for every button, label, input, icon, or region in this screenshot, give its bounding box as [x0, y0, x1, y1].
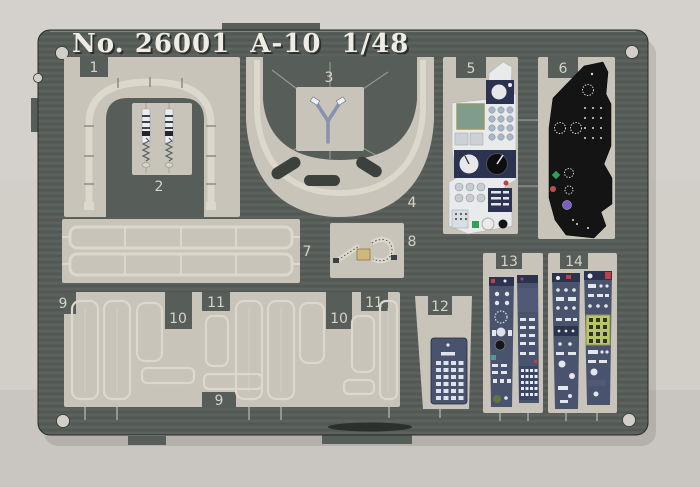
region-2-island [132, 103, 192, 175]
part-label-14: 14 [565, 254, 583, 270]
keypad-display [441, 352, 455, 356]
console-13-teal-key [491, 355, 496, 360]
part-label-4: 4 [408, 195, 417, 211]
panel-5-window-right [470, 133, 483, 145]
panel-5-switch-bars [491, 191, 509, 206]
panel-5-foot-dial [482, 218, 494, 230]
console-13-gauge [497, 328, 506, 337]
keypad-lamp [446, 343, 449, 346]
photo-of-pe-fret: No. 26001 A-10 1/48 No. 26001 A-10 1/48 [0, 0, 700, 487]
console-13-right-red-lamp [521, 278, 524, 281]
console-13-red-key [491, 279, 495, 283]
part-label-3: 3 [325, 70, 334, 86]
console-13-right-red-key [534, 360, 537, 363]
console-14-header-dial [556, 276, 560, 280]
part-label-11a: 11 [207, 295, 225, 311]
title-text: No. 26001 A-10 1/48 [72, 29, 409, 59]
part-label-9b: 9 [215, 393, 224, 409]
console-13-header-lamp [504, 280, 507, 283]
console-14-right-dial [588, 274, 593, 279]
fret-title: No. 26001 A-10 1/48 No. 26001 A-10 1/48 [72, 29, 411, 61]
panel-5-top-lamp [508, 83, 512, 87]
console-13-right-header [517, 275, 538, 283]
part-label-6: 6 [559, 61, 568, 77]
panel-5-foot-knob [499, 220, 508, 229]
console-14-left-red-key [566, 275, 571, 279]
slot-center [304, 175, 340, 186]
corner-hole-bottom-left [57, 415, 70, 428]
part-label-11b: 11 [365, 295, 383, 311]
part-label-13: 13 [500, 254, 518, 270]
part-label-2: 2 [155, 179, 164, 195]
corner-hole-bottom-right [623, 414, 636, 427]
part-label-9a: 9 [59, 296, 68, 312]
console-13-black-knob [495, 340, 505, 350]
bottom-slot [328, 423, 412, 432]
arch-foot-right [206, 202, 216, 210]
part-label-12: 12 [431, 299, 449, 315]
part-label-7: 7 [303, 244, 312, 260]
console-14-right-red-block [605, 272, 611, 279]
panel-5-window-left [455, 133, 468, 145]
part-label-5: 5 [467, 61, 476, 77]
panel-6-purple-knob [563, 201, 572, 210]
part-12-keypad-panel [431, 338, 467, 404]
harness-tip-right [391, 255, 397, 260]
panel-5-green-key [472, 221, 479, 228]
console-13-olive-knob [493, 395, 501, 403]
part-label-10b: 10 [330, 311, 348, 327]
arch-foot-left [84, 202, 94, 210]
part-label-8: 8 [408, 234, 417, 250]
left-edge-notch [34, 74, 43, 83]
panel-5-warning-lamp [504, 181, 509, 186]
panel-6-red-knob [550, 186, 556, 192]
console-13-right-blank [518, 288, 538, 312]
panel-5-top-dial [492, 85, 507, 100]
part-label-10a: 10 [169, 311, 187, 327]
harness-buckle [357, 249, 370, 260]
part-label-1: 1 [90, 60, 99, 76]
bottom-tab-small [128, 436, 166, 445]
harness-tip-left [333, 258, 339, 263]
corner-hole-top-right [626, 46, 639, 59]
panel-5-crt-screen [457, 104, 484, 129]
console-14-lower-block [588, 380, 606, 386]
